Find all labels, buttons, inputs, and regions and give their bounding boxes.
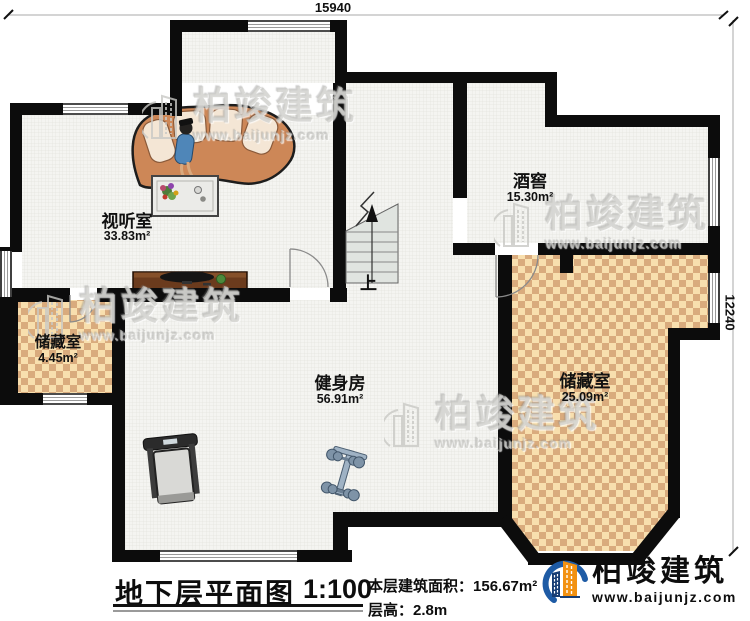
- room-area-storage-small: 4.45m²: [8, 352, 108, 365]
- room-area-media: 33.83m²: [77, 230, 177, 243]
- stairs-up-label: 上: [360, 269, 377, 294]
- room-label-wine-cellar: 酒窖: [480, 173, 580, 191]
- coffee-table: [152, 176, 218, 216]
- plan-scale: 1:100: [303, 574, 372, 605]
- treadmill: [143, 433, 204, 504]
- title-underline: [113, 604, 363, 607]
- floorplan-drawing: [0, 0, 750, 621]
- room-area-storage-large: 25.09m²: [535, 391, 635, 404]
- dimension-top: 15940: [303, 0, 363, 15]
- floor-area-label: 本层建筑面积：: [368, 578, 473, 595]
- floor-height-line: 层高：2.8m: [368, 599, 447, 620]
- dimension-right: 12240: [723, 283, 738, 343]
- title-underline-2: [113, 610, 363, 612]
- company-logo-text: 柏竣建筑: [592, 557, 728, 587]
- floor-area-value: 156.67m²: [473, 578, 537, 595]
- company-logo-icon: [540, 555, 592, 605]
- floor-area-line: 本层建筑面积：156.67m²: [368, 575, 537, 596]
- room-label-storage-small: 储藏室: [8, 335, 108, 351]
- floor-height-value: 2.8m: [413, 602, 447, 619]
- room-label-storage-large: 储藏室: [535, 373, 635, 391]
- tv-cabinet: [133, 272, 247, 290]
- company-logo-url: www.baijunjz.com: [592, 590, 737, 604]
- floorplan-page: 柏竣建筑 www.baijunjz.com 柏竣建筑 www.baijunjz.…: [0, 0, 750, 621]
- room-area-gym: 56.91m²: [290, 393, 390, 406]
- floor-height-label: 层高：: [368, 602, 413, 619]
- room-area-wine-cellar: 15.30m²: [480, 191, 580, 204]
- company-logo: [540, 555, 592, 610]
- room-label-gym: 健身房: [290, 375, 390, 393]
